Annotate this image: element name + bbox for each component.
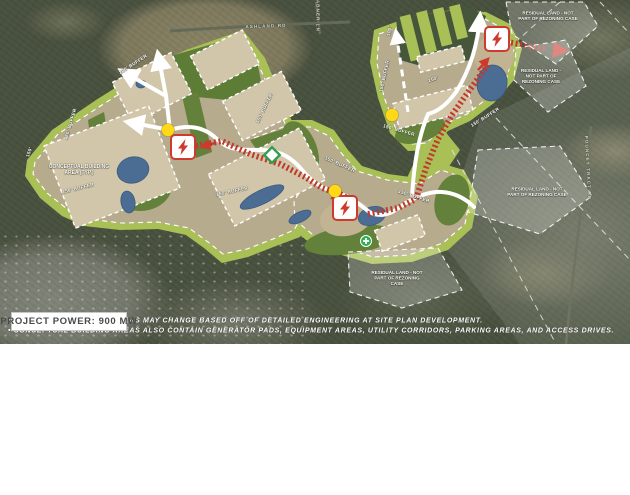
substation-icon [333,196,357,220]
site-plan-page: CONCEPTUAL BUILDING AREA (TYP.) 200' BUF… [0,0,630,495]
project-power-label: PROJECT POWER: 900 MW [0,316,137,327]
residual-land-label: RESIDUAL LAND - NOT PART OF REZONING CAS… [370,270,424,286]
poi-dot-icon [386,109,399,122]
poi-dot-icon [329,185,342,198]
page-whitespace [0,344,630,495]
project-power-box: PROJECT POWER: 900 MW [11,312,127,331]
residual-land-label: RESIDUAL LAND - NOT PART OF REZONING CAS… [507,187,567,198]
residual-land-label: RESIDUAL LAND - NOT PART OF REZONING CAS… [518,11,578,22]
site-plan-map: CONCEPTUAL BUILDING AREA (TYP.) 200' BUF… [0,0,630,344]
poi-dot-icon [162,124,175,137]
substation-icon [485,27,509,51]
residual-land-label: RESIDUAL LAND - NOT PART OF REZONING CAS… [519,68,563,84]
utility-cross-icon [361,236,372,247]
substation-icon [171,135,195,159]
road-label: ABNER LN [315,0,320,32]
conceptual-building-area-label: CONCEPTUAL BUILDING AREA (TYP.) [48,164,110,176]
